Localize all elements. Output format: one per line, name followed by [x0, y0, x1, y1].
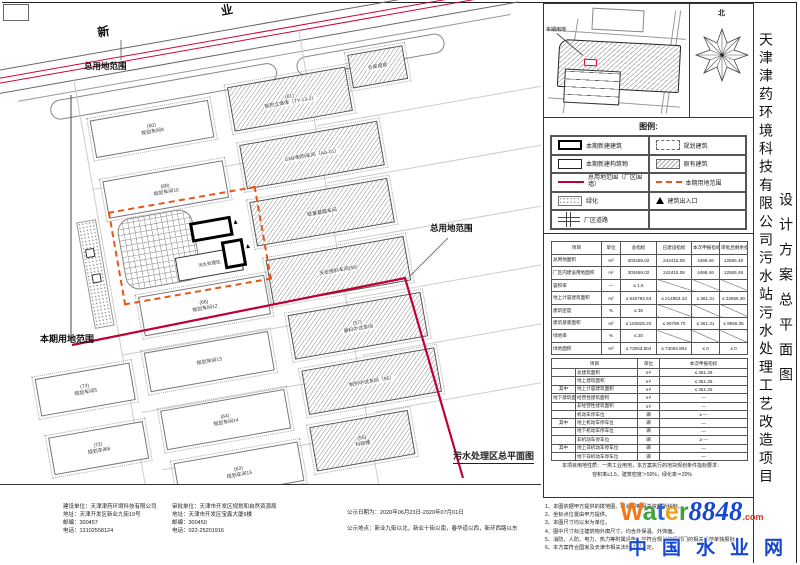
- legend-item: 规划建筑: [649, 136, 747, 155]
- building-planned-15: (63) 规划车间15: [173, 441, 304, 484]
- cell-item: 建筑密度: [552, 304, 602, 317]
- small-structure: [85, 248, 95, 258]
- new-building-icon: [558, 140, 582, 150]
- building-gmp-workshop: GMP制剂车间（AA-01）: [239, 121, 385, 190]
- building-planned-5: (73) 规划车间5: [35, 362, 136, 416]
- cell-total: ≤ 73063.804: [621, 342, 657, 355]
- cell-built: 242415.08: [657, 267, 692, 280]
- table-row: 建筑基底面积 m² ≤ 183829.20 ≤ 90799.70 ≤ 361.3…: [552, 317, 748, 330]
- footer-publicity-info: 公示日期为：2020年06月23日-2020年07月01日 公示地点：新业九街以…: [347, 505, 518, 537]
- legend-label: 规划建筑: [684, 141, 708, 150]
- cell-unit: 辆: [638, 419, 660, 427]
- planned-building-icon: [656, 140, 680, 150]
- building-name: 原料中试车间: [342, 323, 375, 334]
- table-row: 总用地面积 m² 303469.02 242415.08 4498.46 125…: [552, 254, 748, 267]
- cell-unit: 辆: [638, 436, 660, 444]
- factory-road-icon: [558, 212, 580, 227]
- legend: 图例: 本期新建建筑 规划建筑 本期新建构筑物 原有建筑: [544, 118, 753, 234]
- building-name: 规划车间15: [226, 470, 252, 480]
- building-pilot-preparation: 制剂中试车间（56）: [301, 347, 442, 415]
- watermark-number: 8848: [689, 496, 743, 526]
- table-row: 其中 地上非机动车停车位 辆 —: [552, 444, 748, 452]
- cell-unit: —: [602, 279, 621, 292]
- cell-built: [657, 304, 692, 317]
- header-cell: 单位: [638, 359, 660, 369]
- watermark-com: .com: [743, 512, 764, 522]
- inset-site-marker: [584, 59, 597, 67]
- cell-group: [552, 436, 576, 444]
- builder-address: 地址：天津开发区新业九街19号: [63, 511, 157, 519]
- building-name: 规划车间6: [87, 446, 110, 456]
- table-row: 其中 地上计容建筑面积 m² ≤ 361.25: [552, 385, 748, 393]
- cell-current: [692, 279, 720, 292]
- builder-phone: 电话：13102558124: [63, 527, 157, 535]
- legend-label: 本期新建构筑物: [586, 159, 628, 168]
- legend-item: 厂区道路: [551, 210, 649, 229]
- table-header-row: 项目 单位 总指标 已建设指标 本次申报指标 审批后剩余指标: [552, 242, 748, 255]
- cell-value: —: [660, 444, 748, 452]
- building-planned-13: 规划车间13: [144, 331, 275, 392]
- cell-group: 其中: [552, 419, 576, 427]
- cell-item: 地上计容建筑面积: [552, 292, 602, 305]
- cell-total: ≤ 1.5: [621, 279, 657, 292]
- cell-item: 地上非机动车停车位: [576, 444, 638, 452]
- building-name: 规划车间5: [74, 388, 97, 398]
- cell-remaining: ≤ 32866.30: [720, 292, 748, 305]
- total-site-label-top: 总用地范围: [84, 60, 127, 72]
- legend-label: 总用地范围（厂区围墙）: [588, 175, 648, 189]
- approver-name: 审批单位：天津市开发区规划和自然资源局: [172, 503, 277, 511]
- table-row: 建筑密度 % ≤ 35: [552, 304, 748, 317]
- cell-total: ≤ 545763.53: [621, 292, 657, 305]
- legend-item: 本期用地范围: [649, 173, 747, 192]
- header-cell: 单位: [602, 242, 621, 255]
- cell-built: [657, 330, 692, 343]
- builder-name: 建设单位：天津津药环境科技有限公司: [63, 503, 157, 511]
- cell-group: [552, 402, 576, 410]
- drawing-title-vertical: 设计方案总平面图: [776, 192, 796, 392]
- table-row: 非机动车停车位 辆 ≥ —: [552, 436, 748, 444]
- plan-rotated-group: 新 业 十 街 (60) 规划车间9: [0, 0, 541, 484]
- header-cell: 审批后剩余指标: [720, 242, 748, 255]
- legend-label: 本期用地范围: [686, 178, 722, 187]
- existing-building-icon: [656, 159, 680, 169]
- building-name: 科研楼: [354, 439, 372, 448]
- new-building-block: [221, 238, 248, 269]
- cell-value: ≤ 361.25: [660, 377, 748, 385]
- cell-item: 地下非机动车停车位: [576, 452, 638, 460]
- drawing-sheet: 新 业 十 街 (60) 规划车间9: [0, 0, 800, 565]
- cell-unit: m²: [602, 292, 621, 305]
- site-watermark: Water8848.com 中国水业网: [620, 498, 798, 560]
- table-row: 绿地面积 m² ≤ 73063.804 ≤ 73063.804 ≤ 0 ≤ 0: [552, 342, 748, 355]
- cell-group: [552, 427, 576, 435]
- building-planned-6: (72) 规划车间6: [48, 421, 149, 475]
- cell-unit: 辆: [638, 410, 660, 418]
- watermark-logo: Water8848.com: [620, 498, 798, 530]
- right-panel: 本期用地 北 图例:: [543, 3, 754, 498]
- cell-group: [552, 369, 576, 377]
- cell-current: 4498.46: [692, 267, 720, 280]
- cell-item: 地上建筑面积: [576, 377, 638, 385]
- cell-item: 容积率: [552, 279, 602, 292]
- header-cell: 本次申报指标: [692, 242, 720, 255]
- table-row: 总建筑面积 m² ≤ 361.25: [552, 369, 748, 377]
- new-building-block: [189, 216, 234, 243]
- cell-unit: 辆: [638, 444, 660, 452]
- total-boundary-line-icon: [558, 181, 584, 183]
- table-row: 其中 地上机动车停车位 辆 —: [552, 419, 748, 427]
- header-cell: 项目: [552, 242, 602, 255]
- cell-built: 242415.08: [657, 254, 692, 267]
- table-row: 地上计容建筑面积 m² ≤ 545763.53 ≤ 214853.43 ≤ 36…: [552, 292, 748, 305]
- publicity-location: 公示地点：新业九街以北，新业十街以南，春华道以西，新环西路以东: [347, 521, 518, 537]
- cell-group: [552, 410, 576, 418]
- header-cell: 本次申报指标: [660, 359, 748, 369]
- cell-item: 厂区内建设用地面积: [552, 267, 602, 280]
- legend-item: 原有建筑: [649, 155, 747, 174]
- cell-current: ≤ 361.31: [692, 292, 720, 305]
- entrance-triangle-icon: [246, 244, 251, 249]
- building-name: 规划车间13: [196, 356, 222, 366]
- cell-remaining: [720, 330, 748, 343]
- cell-remaining: 12565.48: [720, 267, 748, 280]
- legend-item: 总用地范围（厂区围墙）: [551, 173, 649, 192]
- cell-built: [657, 279, 692, 292]
- footer-approver-info: 审批单位：天津市开发区规划和自然资源局 地址：天津市开发区宝鑫大厦6楼 邮编：3…: [172, 503, 277, 535]
- table-row: 地下建筑面积 经营性建筑面积 m² —: [552, 394, 748, 402]
- current-boundary-line-icon: [656, 181, 682, 183]
- compass-box: 北: [690, 4, 753, 118]
- entrance-triangle-icon: [233, 220, 238, 225]
- inset-site-label: 本期用地: [546, 26, 566, 33]
- cell-unit: m²: [602, 317, 621, 330]
- table-row: 厂区内建设用地面积 m² 303469.02 242415.08 4498.46…: [552, 267, 748, 280]
- cell-unit: %: [602, 304, 621, 317]
- cell-item: 绿地面积: [552, 342, 602, 355]
- header-cell: 已建设指标: [657, 242, 692, 255]
- building-name: 天安原料车间(58): [318, 264, 359, 277]
- cell-value: ≥ —: [660, 410, 748, 418]
- location-inset-map: 本期用地: [544, 4, 690, 118]
- legend-label: 原有建筑: [684, 159, 708, 168]
- cell-unit: %: [602, 330, 621, 343]
- cell-unit: 辆: [638, 452, 660, 460]
- legend-item-empty: [649, 210, 747, 229]
- watermark-letter: r: [679, 498, 689, 526]
- compass-rose-icon: [694, 18, 750, 92]
- building-tianan-workshop: 天安原料车间(58): [266, 236, 412, 305]
- cell-group: 其中: [552, 385, 576, 393]
- cell-remaining: 12565.48: [720, 254, 748, 267]
- legend-label: 建筑出入口: [668, 196, 698, 205]
- building-name: 规划车间10: [153, 187, 179, 197]
- table-row: 机动车停车位 辆 ≥ —: [552, 410, 748, 418]
- cell-remaining: [720, 279, 748, 292]
- plan-bottom-border: [0, 484, 541, 485]
- cell-group: [552, 452, 576, 460]
- table-row: 地上建筑面积 m² ≤ 361.25: [552, 377, 748, 385]
- cell-current: ≤ 361.31: [692, 317, 720, 330]
- building-entrance-icon: [656, 197, 664, 204]
- building-name: 规划车间12: [192, 303, 218, 313]
- building-planned-14: (64) 规划车间14: [160, 389, 291, 450]
- approver-address: 地址：天津市开发区宝鑫大厦6楼: [172, 511, 277, 519]
- inset-block-cluster: [563, 69, 621, 106]
- cell-unit: 辆: [638, 427, 660, 435]
- building-pilot-material: (57) 原料中试车间: [287, 292, 428, 360]
- cell-unit: m²: [638, 402, 660, 410]
- table-row: 绿地率 % ≤ 20: [552, 330, 748, 343]
- cell-value: ≤ 361.25: [660, 369, 748, 377]
- table-row: 非经营性建筑面积 m² —: [552, 402, 748, 410]
- cell-value: —: [660, 402, 748, 410]
- greenery-icon: [558, 196, 582, 206]
- cell-total: ≤ 183829.20: [621, 317, 657, 330]
- cell-total: 303469.02: [621, 267, 657, 280]
- cell-current: ≤ 0: [692, 342, 720, 355]
- table-note-line2: 容积率≤1.5，建筑密度＞50%，绿化率＝20%: [548, 471, 736, 479]
- cell-value: ≥ —: [660, 436, 748, 444]
- building-research: (55) 科研楼: [309, 410, 415, 472]
- cell-item: 地上计容建筑面积: [576, 385, 638, 393]
- legend-label: 绿化: [586, 196, 598, 205]
- building-name: 仓库用房: [366, 62, 389, 72]
- header-cell: 总指标: [621, 242, 657, 255]
- indicator-tables: 项目 单位 总指标 已建设指标 本次申报指标 审批后剩余指标 总用地面积 m² …: [544, 234, 753, 497]
- cell-group: 地下建筑面积: [552, 394, 576, 402]
- building-name: 联复基酸车间: [306, 206, 339, 217]
- cell-value: —: [660, 427, 748, 435]
- cell-unit: m²: [638, 377, 660, 385]
- cell-current: [692, 330, 720, 343]
- publicity-date: 公示日期为：2020年06月23日-2020年07月01日: [347, 505, 518, 521]
- legend-title: 图例:: [544, 118, 753, 132]
- plan-caption: 污水处理区总平面图: [453, 449, 534, 464]
- cell-unit: m²: [638, 369, 660, 377]
- legend-item: 本期新建构筑物: [551, 155, 649, 174]
- cell-remaining: [720, 304, 748, 317]
- building-amino-workshop: 联复基酸车间: [249, 178, 395, 247]
- cell-item: 总建筑面积: [576, 369, 638, 377]
- legend-item: 本期新建建筑: [551, 136, 649, 155]
- cell-built: ≤ 214853.43: [657, 292, 692, 305]
- total-site-label-right: 总用地范围: [430, 222, 473, 234]
- cell-item: 总用地面积: [552, 254, 602, 267]
- building-name: 规划车间14: [213, 417, 239, 427]
- cell-unit: m²: [602, 342, 621, 355]
- watermark-letter: a: [643, 498, 657, 526]
- cell-group: [552, 377, 576, 385]
- table-row: 地下机动车停车位 辆 —: [552, 427, 748, 435]
- legend-grid: 本期新建建筑 规划建筑 本期新建构筑物 原有建筑 总用地范围（厂区围墙）: [550, 135, 747, 230]
- cell-group: 其中: [552, 444, 576, 452]
- header-cell: 项目: [552, 359, 638, 369]
- cell-total: ≤ 35: [621, 304, 657, 317]
- building-name: GMP制剂车间（AA-01）: [283, 147, 340, 163]
- cell-unit: m²: [638, 394, 660, 402]
- cell-unit: m²: [602, 267, 621, 280]
- cell-item: 机动车停车位: [576, 410, 638, 418]
- site-plan: 新 业 十 街 (60) 规划车间9: [0, 0, 541, 484]
- legend-item: 绿化: [551, 192, 649, 211]
- building-name: 规划车间9: [141, 127, 164, 137]
- inset-building-outline: [591, 8, 644, 33]
- cell-value: —: [660, 394, 748, 402]
- watermark-cn-name: 中国水业网: [628, 533, 798, 560]
- cell-item: 绿地率: [552, 330, 602, 343]
- cell-built: ≤ 73063.804: [657, 342, 692, 355]
- watermark-letter: W: [620, 498, 643, 526]
- cell-item: 经营性建筑面积: [576, 394, 638, 402]
- cell-item: 地上机动车停车位: [576, 419, 638, 427]
- legend-item: 建筑出入口: [649, 192, 747, 211]
- cell-value: —: [660, 419, 748, 427]
- builder-zipcode: 邮编：300457: [63, 519, 157, 527]
- legend-label: 厂区道路: [584, 215, 608, 224]
- approver-phone: 电话：022-25201916: [172, 527, 277, 535]
- cell-current: 4498.46: [692, 254, 720, 267]
- watermark-letter: e: [665, 498, 679, 526]
- cell-total: ≤ 20: [621, 330, 657, 343]
- new-structure-icon: [558, 159, 582, 169]
- table-note-line1: 本项目用地性质：一类工业用地，本方案执行的地块规划条件指标要求：: [548, 462, 736, 470]
- small-structure: [91, 273, 101, 283]
- cell-item: 非机动车停车位: [576, 436, 638, 444]
- watermark-letter: t: [657, 498, 665, 526]
- cell-total: 303469.02: [621, 254, 657, 267]
- sewage-station-label: 污水处理站: [198, 259, 221, 269]
- table-header-row: 项目 单位 本次申报指标: [552, 359, 748, 369]
- cell-built: ≤ 90799.70: [657, 317, 692, 330]
- cell-remaining: ≤ 0: [720, 342, 748, 355]
- table-row: 地下非机动车停车位 辆 —: [552, 452, 748, 460]
- north-label: 北: [690, 8, 753, 18]
- cell-value: —: [660, 452, 748, 460]
- cell-current: [692, 304, 720, 317]
- sheet-right-border: [796, 2, 797, 563]
- cell-item: 非经营性建筑面积: [576, 402, 638, 410]
- current-phase-table: 项目 单位 本次申报指标 总建筑面积 m² ≤ 361.25 地上建筑面积: [551, 358, 748, 461]
- cell-value: ≤ 361.25: [660, 385, 748, 393]
- cell-item: 地下机动车停车位: [576, 427, 638, 435]
- current-site-label: 本期用地范围: [40, 332, 94, 345]
- street-name: 新 业 十 街: [96, 0, 535, 41]
- building-name: 制剂中试车间（56）: [348, 374, 396, 388]
- project-title-vertical: 天津津药环境科技有限公司污水站污水处理工艺改造项目: [756, 32, 776, 487]
- overall-indicator-table: 项目 单位 总指标 已建设指标 本次申报指标 审批后剩余指标 总用地面积 m² …: [551, 241, 748, 355]
- cell-unit: m²: [602, 254, 621, 267]
- table-row: 容积率 — ≤ 1.5: [552, 279, 748, 292]
- cell-remaining: ≤ 9556.35: [720, 317, 748, 330]
- cell-unit: m²: [638, 385, 660, 393]
- legend-label: 本期新建建筑: [586, 141, 622, 150]
- cell-item: 建筑基底面积: [552, 317, 602, 330]
- approver-zipcode: 邮编：300450: [172, 519, 277, 527]
- footer-builder-info: 建设单位：天津津药环境科技有限公司 地址：天津开发区新业九街19号 邮编：300…: [63, 503, 157, 535]
